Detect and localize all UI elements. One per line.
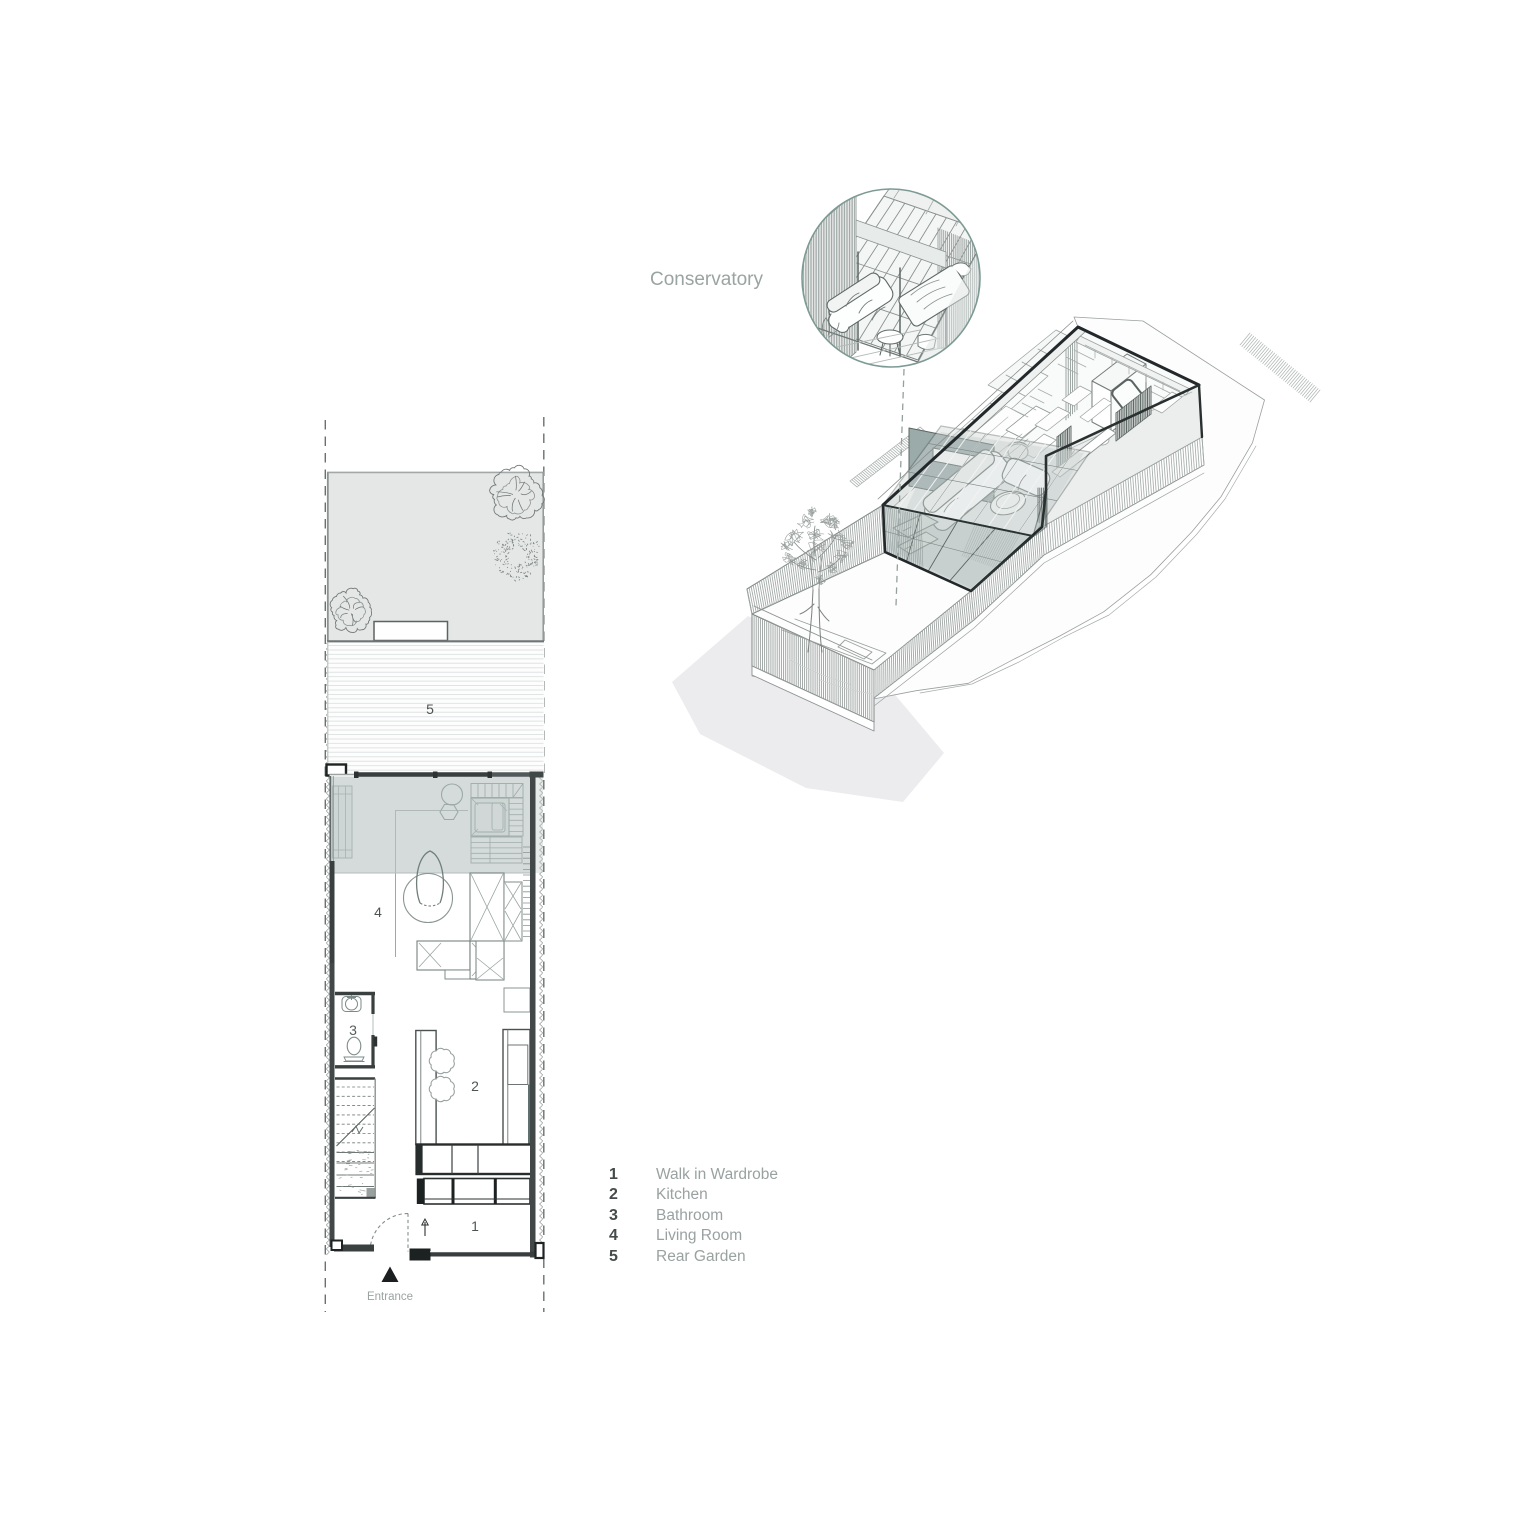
svg-text:2: 2 — [471, 1078, 479, 1094]
svg-text:Entrance: Entrance — [367, 1291, 413, 1303]
svg-text:2: 2 — [609, 1186, 618, 1203]
svg-text:3: 3 — [609, 1207, 618, 1224]
svg-text:5: 5 — [609, 1248, 618, 1265]
svg-text:Walk in Wardrobe: Walk in Wardrobe — [656, 1166, 778, 1183]
svg-text:4: 4 — [609, 1227, 618, 1244]
svg-text:1: 1 — [471, 1218, 479, 1234]
svg-text:Bathroom: Bathroom — [656, 1207, 723, 1224]
svg-text:Conservatory: Conservatory — [650, 269, 763, 290]
svg-text:Living Room: Living Room — [656, 1227, 742, 1244]
svg-text:3: 3 — [349, 1022, 357, 1038]
svg-text:Kitchen: Kitchen — [656, 1186, 708, 1203]
svg-text:Rear Garden: Rear Garden — [656, 1248, 746, 1265]
svg-text:4: 4 — [374, 904, 382, 920]
svg-text:5: 5 — [426, 701, 434, 717]
svg-text:1: 1 — [609, 1166, 618, 1183]
